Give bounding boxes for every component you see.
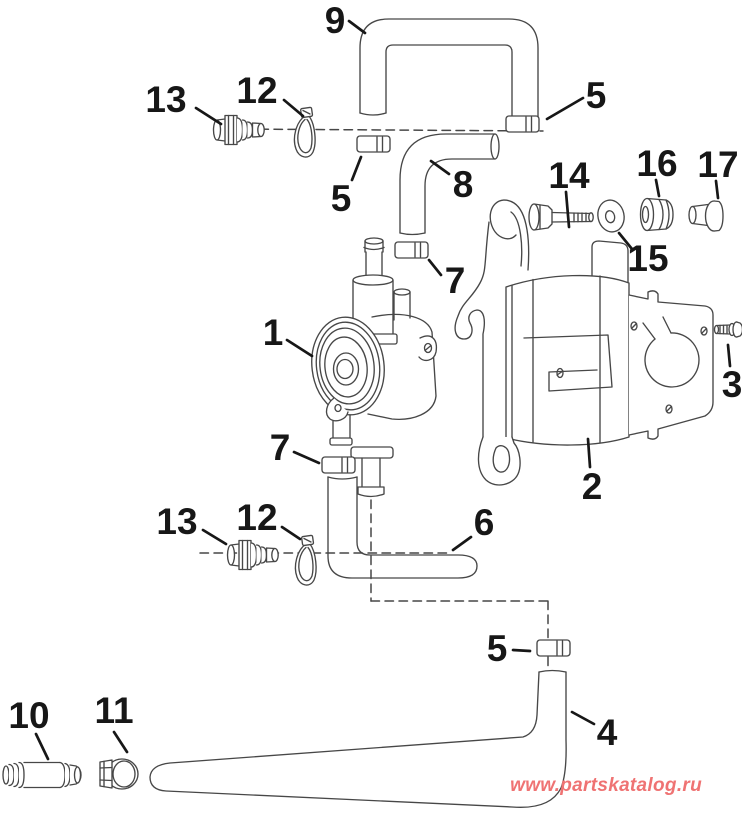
callout-label: 5 — [586, 75, 607, 116]
callout-label: 11 — [94, 690, 133, 731]
exploded-view-drawing: 9 13 12 5 5 8 14 16 17 15 1 7 3 2 7 13 1… — [0, 0, 742, 817]
tie-strap-12-top-drawing — [294, 107, 315, 157]
callout-label: 1 — [263, 312, 284, 353]
callout-label: 17 — [697, 144, 738, 185]
callout-5-top-right: 5 — [547, 75, 606, 119]
callout-12-top: 12 — [236, 70, 303, 116]
grommet-drawing — [641, 199, 674, 231]
callout-label: 16 — [636, 143, 677, 184]
fitting-13-bottom-drawing — [228, 541, 279, 570]
hose-9-drawing — [360, 19, 538, 130]
washer-drawing — [595, 198, 627, 235]
callout-label: 8 — [453, 164, 474, 205]
callout-label: 10 — [8, 695, 49, 736]
callout-label: 5 — [331, 178, 352, 219]
callout-9: 9 — [325, 0, 365, 41]
callout-label: 15 — [627, 238, 668, 279]
callout-label: 5 — [487, 628, 508, 669]
callout-label: 2 — [582, 466, 603, 507]
callout-5-bottom: 5 — [487, 628, 530, 669]
callout-label: 9 — [325, 0, 346, 41]
hose-4-drawing — [150, 671, 566, 808]
fitting-13-top-drawing — [214, 116, 265, 145]
callout-11: 11 — [94, 690, 133, 752]
callout-6: 6 — [453, 502, 494, 550]
callout-2: 2 — [582, 439, 603, 507]
clamp-7-top-drawing — [395, 242, 428, 258]
bushing-drawing — [689, 201, 723, 231]
callout-label: 3 — [722, 364, 742, 405]
callout-8: 8 — [431, 161, 473, 205]
callout-label: 13 — [145, 79, 186, 120]
callout-12-bottom: 12 — [236, 497, 300, 539]
barb-connector-10-drawing — [3, 763, 81, 788]
callout-13-bottom: 13 — [156, 501, 226, 544]
callout-7-top: 7 — [429, 260, 465, 301]
callout-label: 7 — [445, 260, 466, 301]
hose-6-drawing — [328, 477, 477, 578]
callout-label: 6 — [474, 502, 495, 543]
callout-label: 13 — [156, 501, 197, 542]
watermark-text: www.partskatalog.ru — [510, 775, 702, 796]
callout-4: 4 — [572, 712, 618, 753]
hose-8-drawing — [400, 134, 499, 235]
callout-1: 1 — [263, 312, 312, 356]
callout-label: 14 — [548, 155, 590, 196]
callout-label: 4 — [597, 712, 618, 753]
clamp-5-top-left-drawing — [357, 136, 390, 152]
callout-label: 12 — [236, 70, 277, 111]
tie-strap-12-bottom-drawing — [295, 535, 316, 585]
callout-17: 17 — [697, 144, 738, 198]
callout-3: 3 — [722, 345, 742, 405]
callout-10: 10 — [8, 695, 49, 759]
callout-label: 12 — [236, 497, 277, 538]
callout-label: 7 — [270, 427, 291, 468]
callout-13-top: 13 — [145, 79, 221, 124]
bolt-drawing — [529, 204, 593, 230]
callout-5-top-left: 5 — [331, 157, 361, 219]
clamp-7-bottom-drawing — [322, 457, 355, 473]
hose-clamp-11-drawing — [100, 759, 138, 789]
bracket-drawing — [455, 200, 713, 485]
clamp-5-bottom-drawing — [537, 640, 570, 656]
callout-16: 16 — [636, 143, 677, 196]
clamp-5-top-right-drawing — [506, 116, 539, 132]
callout-14: 14 — [548, 155, 590, 227]
callout-7-bottom: 7 — [270, 427, 319, 468]
parts-diagram-canvas: 9 13 12 5 5 8 14 16 17 15 1 7 3 2 7 13 1… — [0, 0, 742, 817]
screw-drawing — [715, 322, 742, 337]
